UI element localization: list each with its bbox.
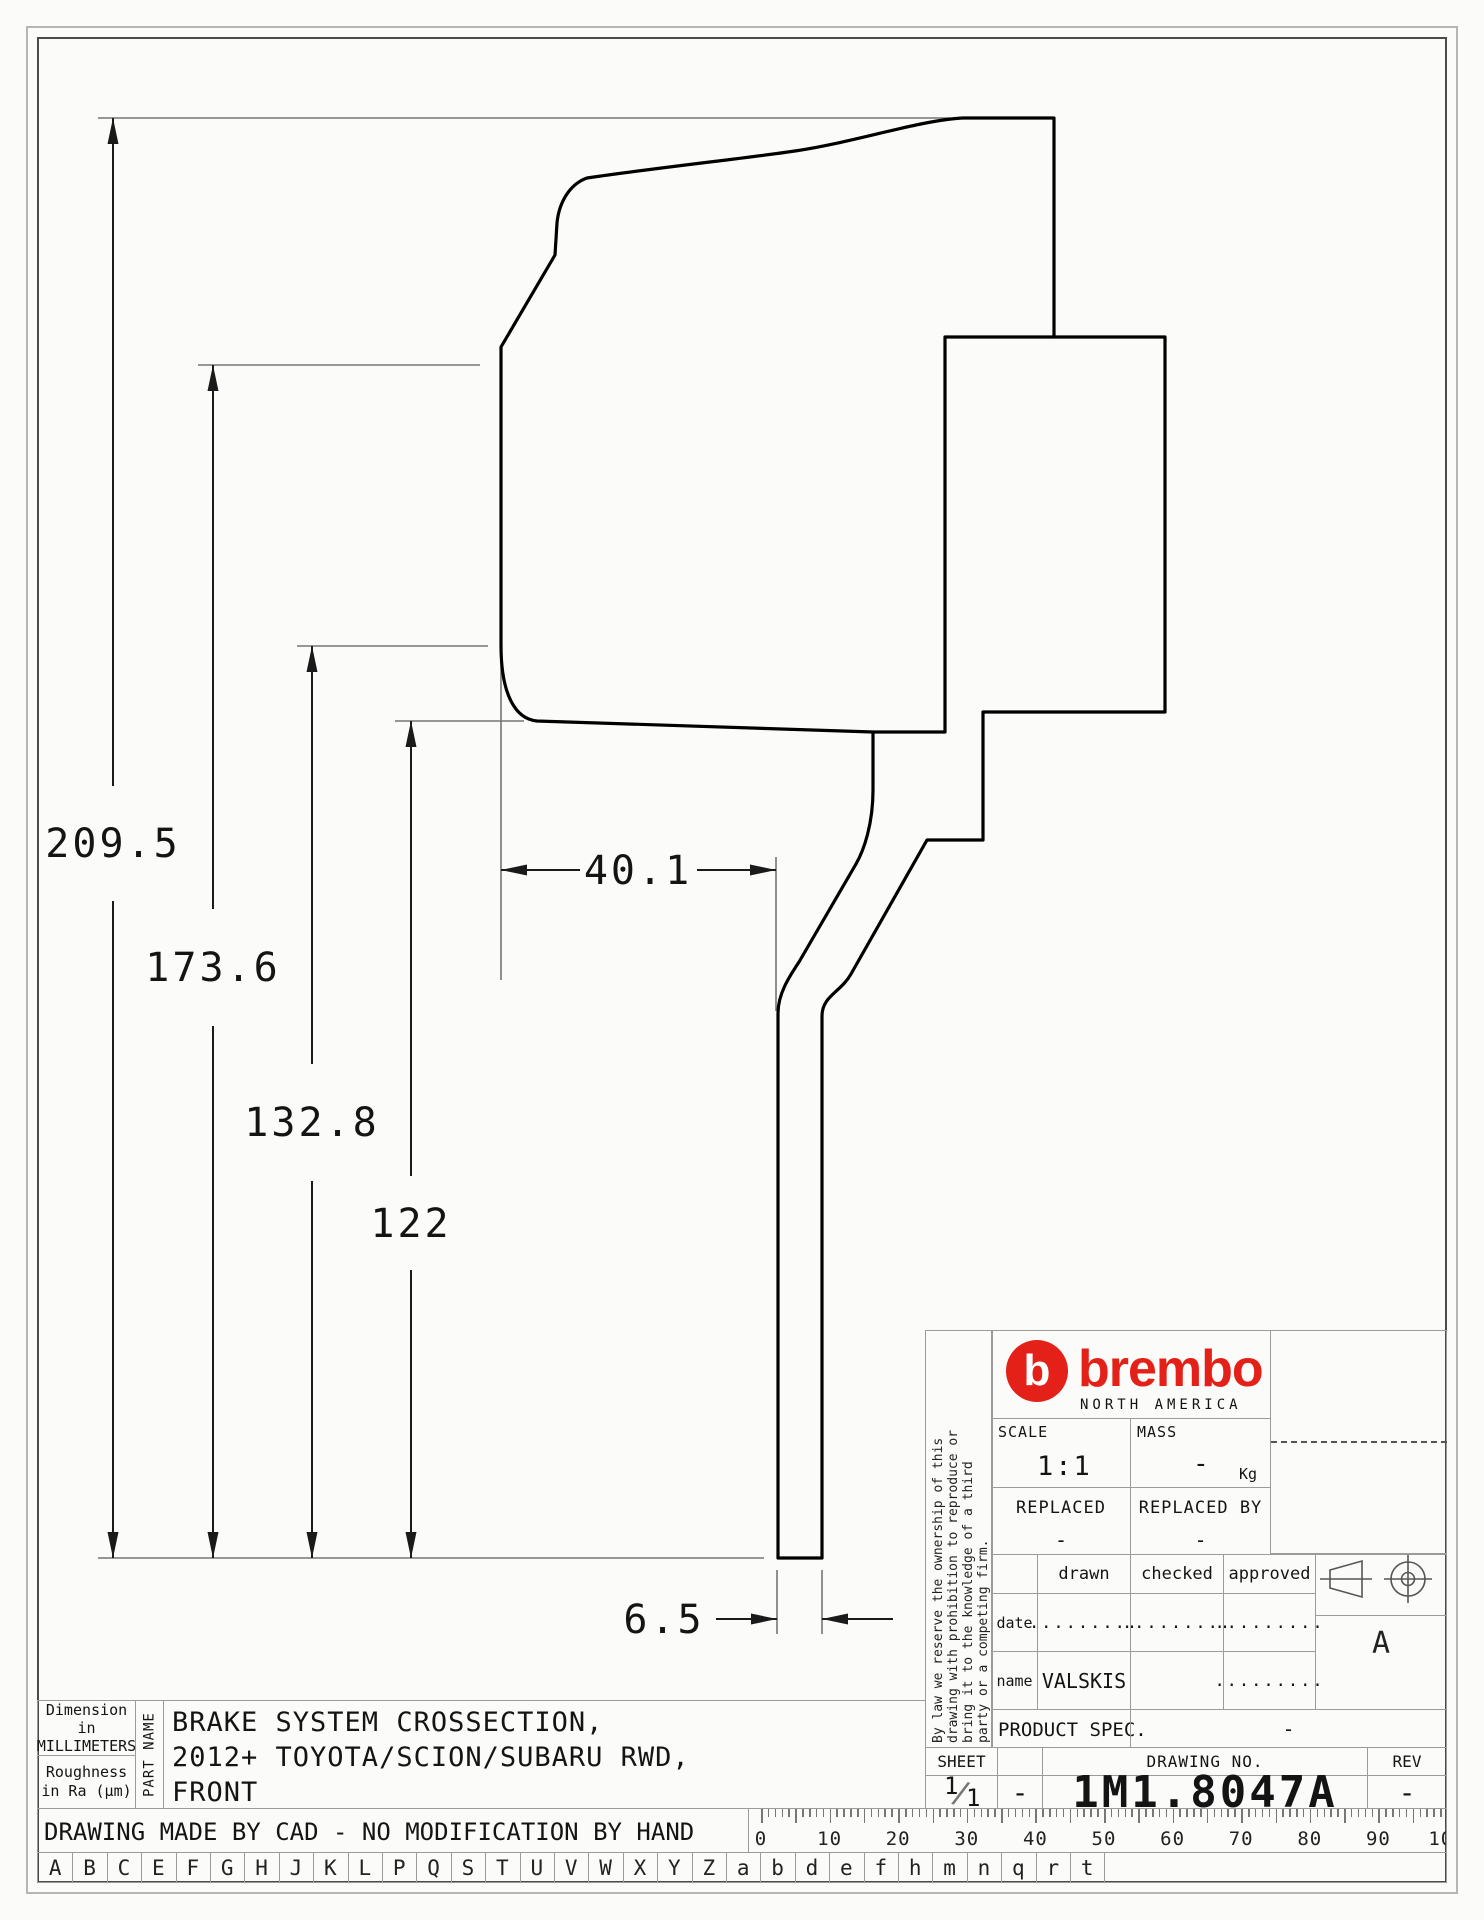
letter-cell: S	[451, 1853, 486, 1882]
dim-flange-height: 122	[370, 1201, 451, 1247]
ruler-tick	[994, 1809, 996, 1817]
ruler-number: 50	[1092, 1828, 1117, 1850]
ruler-tick	[802, 1809, 804, 1817]
first-angle-projection-icon	[1316, 1555, 1446, 1614]
ruler-tick	[1227, 1809, 1229, 1817]
ruler-number: 0	[755, 1828, 767, 1850]
ruler-tick	[946, 1809, 948, 1817]
ruler-tick	[1392, 1809, 1394, 1817]
ruler-tick	[1090, 1809, 1092, 1817]
mass-unit: Kg	[1239, 1465, 1257, 1483]
drawing-number: 1M1.8047A	[1042, 1775, 1368, 1809]
disclaimer-line-1: By law we reserve the ownership of this	[931, 1438, 946, 1743]
letter-cell: B	[72, 1853, 107, 1882]
centerline-dashed	[1271, 1441, 1447, 1443]
ruler-tick	[1399, 1809, 1401, 1817]
roughness-cell: Roughness in Ra (µm)	[37, 1755, 136, 1809]
ruler-tick	[1241, 1809, 1243, 1823]
roughness-note: Roughness in Ra (µm)	[38, 1756, 135, 1808]
letter-cell: Y	[657, 1853, 692, 1882]
ruler-tick	[864, 1809, 866, 1823]
ruler-tick	[1029, 1809, 1031, 1817]
letter-cell: a	[726, 1853, 761, 1882]
ruler-tick	[836, 1809, 838, 1817]
ruler-tick	[830, 1809, 832, 1823]
ruler-number: 40	[1023, 1828, 1048, 1850]
letter-cell: P	[382, 1853, 417, 1882]
ruler-tick	[1083, 1809, 1085, 1817]
dimension-arrows	[108, 118, 849, 1625]
ruler-number: 60	[1160, 1828, 1185, 1850]
dimension-unit-cell: Dimension in MILLIMETERS	[37, 1700, 136, 1756]
ruler-tick	[1049, 1809, 1051, 1817]
letter-cell: d	[795, 1853, 830, 1882]
ruler-tick	[1433, 1809, 1435, 1817]
part-name-cell: BRAKE SYSTEM CROSSECTION, 2012+ TOYOTA/S…	[163, 1700, 926, 1809]
sig-corner-cell	[991, 1554, 1038, 1594]
letter-cell: W	[588, 1853, 623, 1882]
ruler-number: 100	[1428, 1828, 1447, 1850]
ruler-tick	[1022, 1809, 1024, 1817]
letter-cell: F	[176, 1853, 211, 1882]
ruler-tick	[878, 1809, 880, 1817]
ruler-tick	[1042, 1809, 1044, 1817]
ruler-number: 30	[954, 1828, 979, 1850]
letter-cell: Z	[692, 1853, 727, 1882]
ruler-tick	[1289, 1809, 1291, 1817]
dim-mid-height: 132.8	[244, 1100, 379, 1146]
ruler-tick	[1125, 1809, 1127, 1817]
ruler-tick	[1118, 1809, 1120, 1817]
ruler-tick	[1097, 1809, 1099, 1817]
letter-cell: t	[1070, 1853, 1105, 1882]
letter-cell: Q	[416, 1853, 451, 1882]
sig-header-checked: checked	[1130, 1554, 1224, 1594]
letter-cell: J	[279, 1853, 314, 1882]
ruler-tick	[1001, 1809, 1003, 1823]
ruler-tick	[1276, 1809, 1278, 1823]
ruler-tick	[1385, 1809, 1387, 1817]
ruler-tick	[816, 1809, 818, 1817]
replaced-label: REPLACED	[992, 1498, 1130, 1518]
part-name-line-3: FRONT	[172, 1777, 258, 1808]
dimension-labels: 209.5 173.6 132.8 122 40.1 6.5	[45, 821, 704, 1643]
letter-cell: X	[623, 1853, 658, 1882]
ruler-tick	[1015, 1809, 1017, 1817]
sig-date-drawn: .........	[1037, 1593, 1131, 1652]
ruler-tick	[1426, 1809, 1428, 1817]
ruler-tick	[775, 1809, 777, 1817]
letter-cell: T	[485, 1853, 520, 1882]
ruler-tick	[1166, 1809, 1168, 1817]
cad-note-cell: DRAWING MADE BY CAD - NO MODIFICATION BY…	[37, 1808, 749, 1853]
mass-value: -	[1193, 1449, 1209, 1479]
ruler-number: 10	[817, 1828, 842, 1850]
ruler-tick	[768, 1809, 770, 1817]
disclaimer-text: By law we reserve the ownership of this …	[931, 1337, 991, 1743]
letter-cell: K	[313, 1853, 348, 1882]
letter-cell: e	[829, 1853, 864, 1882]
letter-cell: C	[107, 1853, 142, 1882]
ruler-tick	[1324, 1809, 1326, 1817]
ruler-tick	[1358, 1809, 1360, 1817]
dim-total-height: 209.5	[45, 821, 180, 867]
ruler-tick	[843, 1809, 845, 1817]
ruler-tick	[1282, 1809, 1284, 1817]
ruler-tick	[926, 1809, 928, 1817]
brembo-wordmark: brembo	[1078, 1339, 1263, 1399]
ruler-tick	[1440, 1809, 1442, 1817]
ruler-tick	[823, 1809, 825, 1817]
ruler-tick	[898, 1809, 900, 1823]
disclaimer-box: By law we reserve the ownership of this …	[925, 1330, 993, 1748]
ruler-tick	[1234, 1809, 1236, 1817]
ruler-tick	[919, 1809, 921, 1817]
replaced-by-cell: REPLACED BY -	[1130, 1487, 1271, 1555]
ruler-tick	[1111, 1809, 1113, 1817]
ruler-number: 20	[886, 1828, 911, 1850]
rev-value: -	[1367, 1775, 1447, 1809]
ruler-tick	[1214, 1809, 1216, 1817]
rev-label: REV	[1367, 1747, 1447, 1776]
ruler-tick	[1330, 1809, 1332, 1817]
brembo-logo-icon: b	[1006, 1340, 1068, 1402]
ruler-tick	[1372, 1809, 1374, 1817]
sig-date-approved: .........	[1223, 1593, 1316, 1652]
ruler-tick	[891, 1809, 893, 1817]
replaced-value: -	[992, 1528, 1130, 1552]
sig-name-drawn: VALSKIS	[1037, 1651, 1131, 1710]
scale-value: 1:1	[1037, 1451, 1092, 1482]
letter-cell: E	[141, 1853, 176, 1882]
product-spec-label: PRODUCT SPEC.	[998, 1719, 1147, 1741]
dimension-unit-note: Dimension in MILLIMETERS	[38, 1701, 135, 1755]
disclaimer-line-4: party or a competing firm.	[976, 1540, 991, 1744]
replaced-cell: REPLACED -	[991, 1487, 1131, 1555]
scale-ruler: 0102030405060708090100	[748, 1808, 1447, 1853]
ruler-number: 70	[1229, 1828, 1254, 1850]
ruler-tick	[1063, 1809, 1065, 1817]
sig-name-label: name	[991, 1651, 1038, 1710]
disclaimer-line-2: drawing with prohibition to reproduce or	[946, 1430, 961, 1743]
ruler-tick	[1351, 1809, 1353, 1817]
ruler-tick	[761, 1809, 763, 1823]
ruler-tick	[981, 1809, 983, 1817]
ruler-tick	[1413, 1809, 1415, 1823]
replaced-by-value: -	[1131, 1528, 1270, 1552]
dim-upper-height: 173.6	[145, 945, 280, 991]
part-name-line-1: BRAKE SYSTEM CROSSECTION,	[172, 1707, 603, 1738]
sheet-separator: -	[997, 1775, 1043, 1809]
ruler-tick	[1179, 1809, 1181, 1817]
ruler-tick	[788, 1809, 790, 1817]
ruler-tick	[1056, 1809, 1058, 1817]
sheet-label: SHEET	[925, 1747, 998, 1776]
brand-cell: b brembo NORTH AMERICA	[991, 1330, 1271, 1419]
part-name-label-cell: PART NAME	[135, 1700, 164, 1809]
ruler-tick	[1420, 1809, 1422, 1817]
dim-disc-thickness: 6.5	[623, 1597, 704, 1643]
letter-cell: n	[967, 1853, 1002, 1882]
ruler-tick	[1008, 1809, 1010, 1817]
letter-cell: q	[1001, 1853, 1036, 1882]
ruler-tick	[1406, 1809, 1408, 1817]
letter-cell: m	[932, 1853, 967, 1882]
product-spec-label-cell: PRODUCT SPEC.	[991, 1709, 1131, 1748]
brembo-subtitle: NORTH AMERICA	[1080, 1397, 1242, 1413]
ruler-tick	[987, 1809, 989, 1817]
projection-view-cell	[1270, 1330, 1447, 1554]
letter-cell: A	[38, 1853, 73, 1882]
ruler-tick	[1337, 1809, 1339, 1817]
letter-cell: G	[210, 1853, 245, 1882]
sig-name-checked	[1130, 1651, 1224, 1710]
letter-cell: b	[760, 1853, 795, 1882]
ruler-number: 90	[1366, 1828, 1391, 1850]
scale-label: SCALE	[998, 1423, 1048, 1441]
brembo-mark-letter: b	[1006, 1340, 1068, 1402]
ruler-tick	[905, 1809, 907, 1817]
ruler-tick	[1173, 1809, 1175, 1823]
ruler-tick	[1296, 1809, 1298, 1817]
cad-note: DRAWING MADE BY CAD - NO MODIFICATION BY…	[44, 1818, 694, 1846]
ruler-tick	[974, 1809, 976, 1817]
ruler-tick	[1255, 1809, 1257, 1817]
ruler-tick	[912, 1809, 914, 1817]
mass-cell: MASS - Kg	[1130, 1418, 1271, 1488]
letter-cell: f	[864, 1853, 899, 1882]
ruler-tick	[1104, 1809, 1106, 1823]
ruler-tick	[1221, 1809, 1223, 1817]
dim-hat-depth: 40.1	[584, 848, 692, 894]
paper-size-symbol: A	[1316, 1616, 1446, 1672]
ruler-tick	[1145, 1809, 1147, 1817]
ruler-tick	[884, 1809, 886, 1817]
ruler-tick	[933, 1809, 935, 1823]
sig-header-drawn: drawn	[1037, 1554, 1131, 1594]
scale-cell: SCALE 1:1	[991, 1418, 1131, 1488]
product-spec-value: -	[1130, 1709, 1447, 1748]
letter-strip: ABCEFGHJKLPQSTUVWXYZabdefhmnqrt	[37, 1852, 1447, 1883]
ruler-tick	[1070, 1809, 1072, 1823]
ruler-tick	[1077, 1809, 1079, 1817]
ruler-tick	[1152, 1809, 1154, 1817]
letter-cell: L	[348, 1853, 383, 1882]
part-interior-line	[873, 337, 1054, 732]
ruler-tick	[871, 1809, 873, 1817]
letter-cell: H	[244, 1853, 279, 1882]
drawing-sheet: 209.5 173.6 132.8 122 40.1 6.5 By law we…	[0, 0, 1484, 1920]
replaced-by-label: REPLACED BY	[1131, 1498, 1270, 1518]
ruler-tick	[1317, 1809, 1319, 1817]
ruler-tick	[1035, 1809, 1037, 1823]
ruler-tick	[1269, 1809, 1271, 1817]
sig-header-approved: approved	[1223, 1554, 1316, 1594]
ruler-tick	[960, 1809, 962, 1817]
sig-date-checked: .........	[1130, 1593, 1224, 1652]
ruler-tick	[967, 1809, 969, 1823]
ruler-tick	[1193, 1809, 1195, 1817]
letter-cell: U	[520, 1853, 555, 1882]
letter-cell: h	[898, 1853, 933, 1882]
disclaimer-line-3: bring it to the knowledge of a third	[961, 1461, 976, 1743]
ruler-tick	[857, 1809, 859, 1817]
ruler-tick	[795, 1809, 797, 1823]
ruler-tick	[1262, 1809, 1264, 1817]
sig-name-approved: .........	[1223, 1651, 1316, 1710]
ruler-tick	[939, 1809, 941, 1817]
part-name-label: PART NAME	[136, 1701, 163, 1808]
part-name-line-2: 2012+ TOYOTA/SCION/SUBARU RWD,	[172, 1742, 690, 1773]
ruler-tick	[850, 1809, 852, 1817]
ruler-tick	[1344, 1809, 1346, 1823]
letter-cell: r	[1036, 1853, 1071, 1882]
sheet-sep-header-cell	[997, 1747, 1043, 1776]
ruler-tick	[1310, 1809, 1312, 1823]
ruler-tick	[1207, 1809, 1209, 1823]
sheet-value-cell: 1 / 1	[925, 1775, 998, 1809]
ruler-tick	[1186, 1809, 1188, 1817]
ruler-tick	[1248, 1809, 1250, 1817]
ruler-tick	[1131, 1809, 1133, 1817]
ruler-tick	[782, 1809, 784, 1817]
letter-cell: V	[554, 1853, 589, 1882]
projection-symbol-cell	[1315, 1554, 1447, 1616]
ruler-tick	[809, 1809, 811, 1817]
ruler-tick	[1138, 1809, 1140, 1823]
ruler-tick	[953, 1809, 955, 1817]
mass-label: MASS	[1137, 1423, 1177, 1441]
ruler-tick	[1200, 1809, 1202, 1817]
paper-size-cell: A	[1315, 1615, 1447, 1710]
ruler-number: 80	[1297, 1828, 1322, 1850]
ruler-tick	[1378, 1809, 1380, 1823]
ruler-tick	[1159, 1809, 1161, 1817]
ruler-tick	[1303, 1809, 1305, 1817]
ruler-tick	[1365, 1809, 1367, 1817]
